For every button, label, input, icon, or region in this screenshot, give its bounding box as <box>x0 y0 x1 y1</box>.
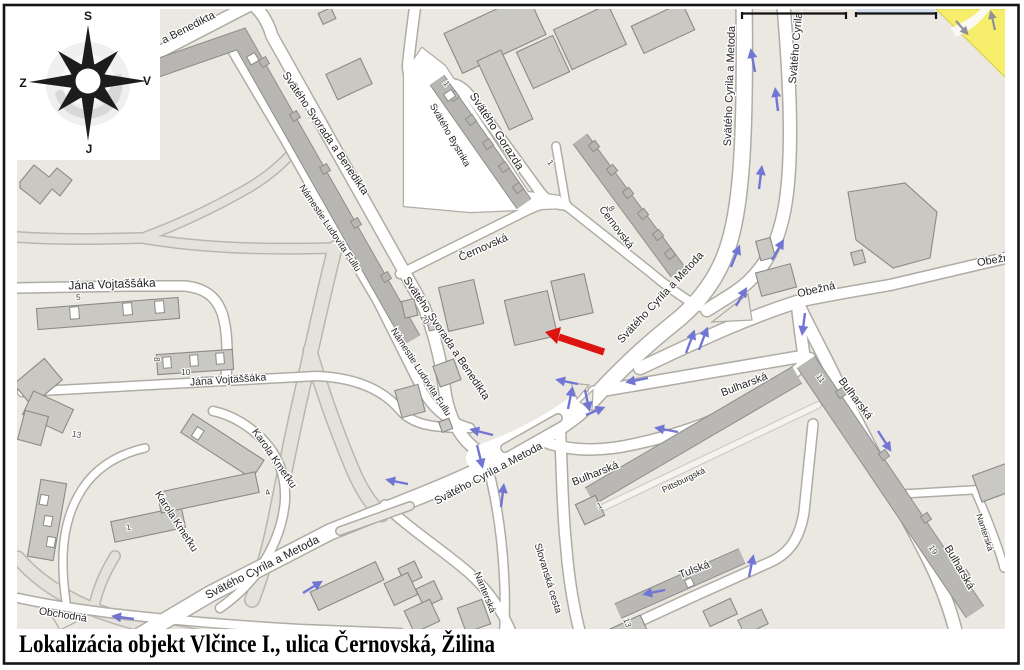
svg-text:5: 5 <box>76 292 81 302</box>
svg-text:10: 10 <box>181 367 191 377</box>
svg-text:Lokalizácia objekt Vlčince I.,: Lokalizácia objekt Vlčince I., ulica Čer… <box>19 629 495 658</box>
svg-text:S: S <box>84 9 92 23</box>
svg-text:13: 13 <box>71 429 82 441</box>
svg-text:V: V <box>143 74 151 88</box>
svg-text:Z: Z <box>19 76 26 90</box>
svg-text:8: 8 <box>152 357 162 362</box>
svg-text:J: J <box>86 142 93 156</box>
